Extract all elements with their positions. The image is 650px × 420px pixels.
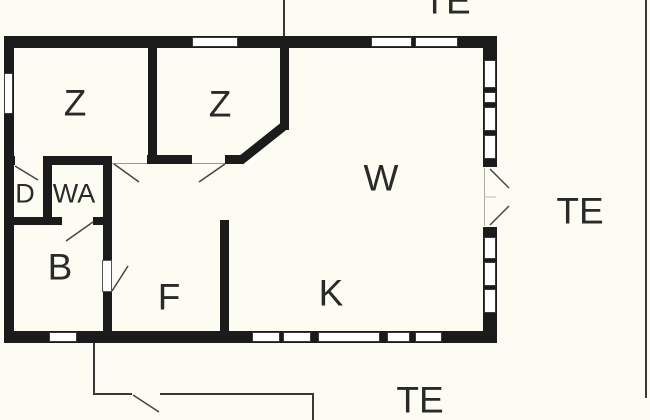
door-swing-z1 — [114, 164, 139, 182]
wall-d-top-stub — [4, 156, 15, 165]
window-right-6 — [484, 262, 496, 286]
door-swing-b — [112, 266, 128, 291]
window-right-1 — [484, 60, 496, 88]
wall-z2-right — [280, 48, 289, 130]
window-top-2 — [371, 37, 412, 47]
room-label-bedroom-1: Z — [64, 85, 87, 122]
window-top-3 — [415, 37, 458, 47]
gate-swing-terrace-bottom — [133, 395, 159, 412]
window-right-2 — [484, 92, 496, 103]
room-label-bathroom: B — [48, 249, 73, 286]
plan-line-overlay — [0, 0, 650, 420]
window-right-7 — [484, 289, 496, 313]
window-bottom-6 — [415, 332, 442, 342]
terrace-label-top: TE — [423, 0, 470, 20]
window-right-5 — [484, 237, 496, 259]
room-label-kitchen: K — [319, 275, 344, 312]
window-left-1 — [4, 73, 13, 114]
window-right-4 — [484, 135, 496, 159]
terrace-outline-bottom-right — [160, 394, 313, 420]
floor-plan: Z Z W D WA B F K TE TE TE — [0, 0, 650, 420]
wall-hall-top-right — [225, 155, 243, 164]
window-bottom-5 — [387, 332, 410, 342]
door-leaf-bathroom — [102, 260, 112, 292]
window-bottom-2 — [252, 332, 280, 342]
door-opening-terrace-right — [483, 167, 497, 227]
window-bottom-4 — [318, 332, 380, 342]
room-label-living: W — [364, 160, 399, 197]
room-label-bedroom-2: Z — [209, 86, 232, 123]
wall-f-k-divider — [220, 220, 229, 331]
window-top-1 — [192, 37, 238, 47]
wall-z2-diagonal — [240, 126, 284, 161]
wall-z-divider-foot — [147, 155, 192, 164]
wall-hall-left — [103, 156, 112, 331]
room-label-d: D — [15, 181, 35, 208]
door-swing-wa — [66, 222, 93, 241]
terrace-label-bottom: TE — [396, 382, 443, 419]
wall-wa-top — [43, 156, 111, 165]
terrace-outline-bottom-left — [94, 343, 132, 394]
room-label-hall: F — [158, 279, 181, 316]
room-label-wa: WA — [53, 181, 96, 208]
terrace-label-right: TE — [556, 193, 603, 230]
door-swing-z2 — [199, 164, 225, 182]
window-bottom-3 — [283, 332, 311, 342]
window-right-3 — [484, 107, 496, 131]
wall-d-wa-divider — [43, 165, 52, 221]
wall-z1-z2-divider — [148, 48, 157, 155]
window-bottom-1 — [49, 332, 77, 342]
wall-d-bottom — [4, 217, 62, 225]
